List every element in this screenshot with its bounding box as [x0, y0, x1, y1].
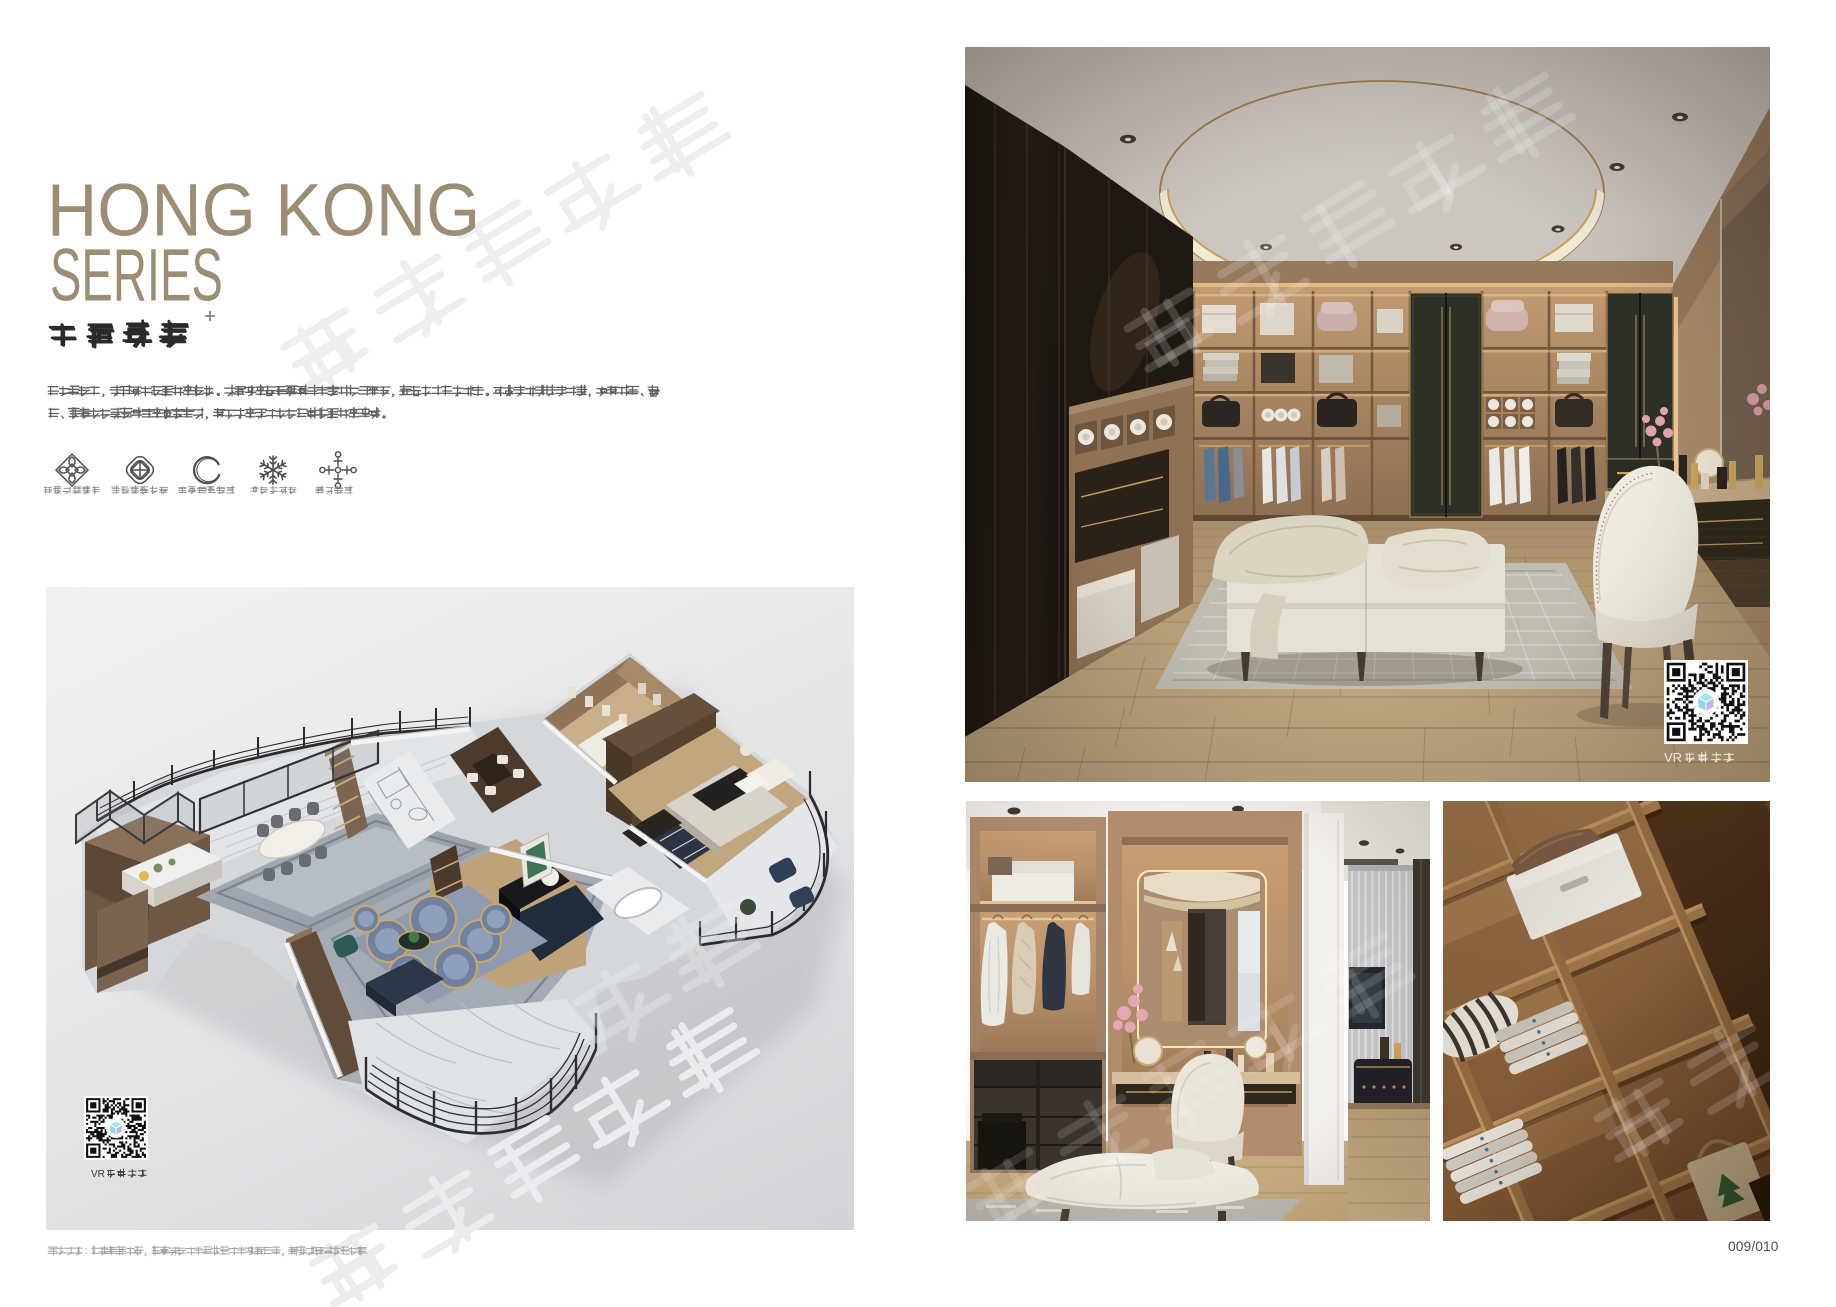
- svg-text:VR: VR: [91, 1169, 105, 1180]
- svg-text:009/010: 009/010: [1728, 1239, 1779, 1254]
- svg-text:SERIES: SERIES: [50, 235, 223, 317]
- svg-text:VR: VR: [1664, 750, 1682, 765]
